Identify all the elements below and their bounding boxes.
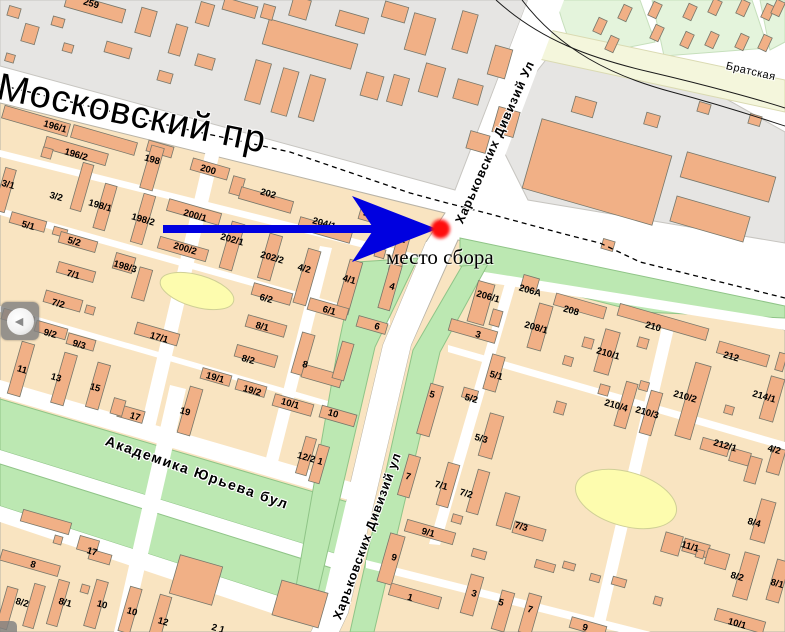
chevron-left-icon: ◄	[12, 314, 26, 328]
pan-button-circle: ◄	[7, 308, 34, 335]
pan-left-button[interactable]: ◄	[1, 302, 39, 340]
meeting-point-label: место сбора	[386, 245, 494, 270]
map-canvas	[0, 0, 785, 632]
map-viewport[interactable]: Московский пр Харьковских Дивизий Ул Хар…	[0, 0, 785, 632]
map-control-fragment[interactable]	[0, 621, 17, 632]
